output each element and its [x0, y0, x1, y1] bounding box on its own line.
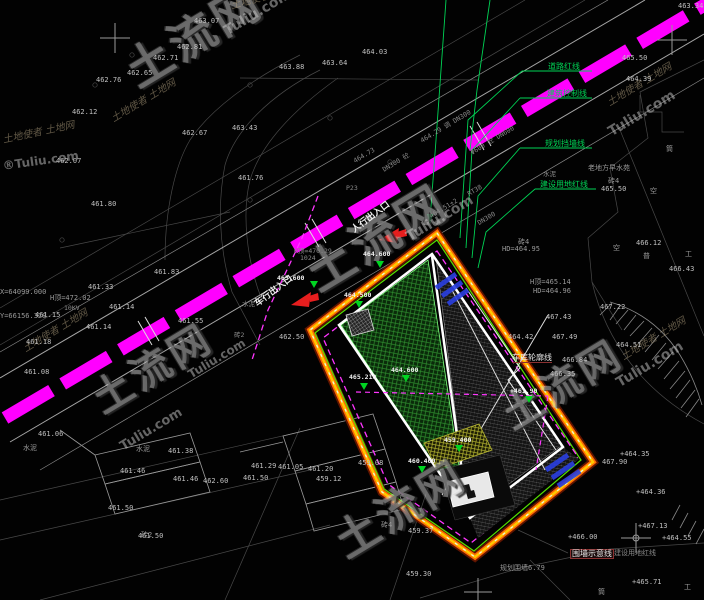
road-annotation-label: 1024	[300, 254, 316, 262]
road-red-line-label: 道路红线	[548, 63, 580, 71]
misc-label: HD=464.95	[502, 245, 540, 253]
misc-label: 砖2	[141, 530, 152, 540]
spot-elevation-label: 459.30	[406, 570, 431, 578]
misc-label: 工	[684, 582, 691, 592]
planning-wall-line-label: 规划挡墙线	[545, 140, 585, 148]
spot-elevation-label: 465.50	[601, 185, 626, 193]
spot-elevation-label: 461.50	[108, 504, 133, 512]
garage-outline-label: 车库轮廓线	[512, 354, 552, 363]
elevation-marker-triangle-icon	[310, 281, 318, 288]
building-control-line-label: 建筑控制线	[547, 90, 587, 98]
elevation-marker-triangle-icon	[360, 383, 368, 390]
spot-elevation-label: 466.84	[562, 356, 587, 364]
road-annotation-label: P23	[346, 184, 358, 192]
spot-elevation-label: 461.33	[88, 283, 113, 291]
spot-elevation-label: 461.55	[178, 317, 203, 325]
spot-elevation-label: 465.50	[622, 54, 647, 62]
spot-elevation-label: 462.60	[203, 477, 228, 485]
construction-land-red-line-label: 建设用地红线	[540, 181, 588, 189]
misc-label: 筒	[666, 144, 673, 154]
spot-elevation-label: 461.20	[308, 465, 333, 473]
spot-elevation-label: 463.88	[279, 63, 304, 71]
spot-elevation-label: 464.51	[616, 341, 641, 349]
elevation-marker-value: 464.500	[344, 291, 371, 299]
misc-label: 水泥	[23, 443, 37, 453]
elevation-marker-value: 459.400	[444, 436, 471, 444]
spot-elevation-label: 464.03	[362, 48, 387, 56]
elevation-marker-triangle-icon	[455, 445, 463, 452]
spot-elevation-label: 464.42	[508, 333, 533, 341]
spot-elevation-label: 461.14	[86, 323, 111, 331]
spot-elevation-label: 459.08	[358, 459, 383, 467]
road-annotation-label: 水泥	[543, 168, 556, 178]
spot-elevation-label: 461.29	[251, 462, 276, 470]
spot-elevation-label: 467.90	[602, 458, 627, 466]
construction-land-red-line-label-2: 建设用地红线	[614, 550, 656, 557]
spot-elevation-label: 467.22	[600, 303, 625, 311]
spot-elevation-label: 463.34	[678, 2, 703, 10]
misc-label: 砖4	[608, 176, 619, 186]
spot-elevation-label: 462.76	[96, 76, 121, 84]
spot-elevation-label: +464.36	[636, 488, 666, 496]
spot-elevation-label: 461.14	[109, 303, 134, 311]
spot-elevation-label: 462.50	[279, 333, 304, 341]
road-annotation-label: 10KV	[64, 304, 80, 312]
spot-elevation-label: 464.39	[626, 75, 651, 83]
elevation-marker-value: 464.600	[391, 366, 418, 374]
spot-elevation-label: 461.76	[238, 174, 263, 182]
road-annotation-label: 砖2	[234, 329, 244, 339]
misc-label: 水泥	[136, 444, 150, 454]
elevation-marker-value: +461.90	[510, 387, 537, 395]
misc-label: 规划围墙6.79	[500, 563, 545, 573]
spot-elevation-label: 462.67	[182, 129, 207, 137]
spot-elevation-label: 466.12	[636, 239, 661, 247]
elevation-marker-value: 465.210	[349, 373, 376, 381]
spot-elevation-label: 461.18	[26, 338, 51, 346]
spot-elevation-label: 461.50	[243, 474, 268, 482]
misc-label: 空	[650, 186, 657, 196]
misc-label: 筒	[598, 587, 605, 597]
misc-label: 普	[643, 251, 650, 261]
spot-elevation-label: 459.12	[316, 475, 341, 483]
spot-elevation-label: 466.35	[550, 370, 575, 378]
spot-elevation-label: 467.43	[546, 313, 571, 321]
spot-elevation-label: 462.71	[153, 54, 178, 62]
spot-elevation-label: 462.07	[56, 157, 81, 165]
spot-elevation-label: 462.12	[72, 108, 97, 116]
site-plan-canvas[interactable]: 土流网Tuliu.com土流网Tuliu.com土流网Tuliu.com土流网土…	[0, 0, 704, 600]
spot-elevation-label: +466.00	[568, 533, 598, 541]
misc-label: 砖4	[381, 520, 392, 530]
spot-elevation-label: 467.49	[552, 333, 577, 341]
elevation-marker-triangle-icon	[355, 301, 363, 308]
spot-elevation-label: +467.13	[638, 522, 668, 530]
misc-label: H顶=472.02	[50, 293, 91, 303]
spot-elevation-label: 466.43	[669, 265, 694, 273]
spot-elevation-label: +464.55	[662, 534, 692, 542]
spot-elevation-label: 461.08	[24, 368, 49, 376]
spot-elevation-label: 461.06	[38, 430, 63, 438]
elevation-marker-value: 460.400	[408, 457, 435, 465]
misc-label: 老地方早水苑	[588, 163, 630, 173]
spot-elevation-label: 463.07	[194, 17, 219, 25]
spot-elevation-label: 463.43	[232, 124, 257, 132]
spot-elevation-label: 461.46	[173, 475, 198, 483]
vehicle-arrow-icon	[291, 292, 311, 307]
spot-elevation-label: 462.65	[127, 69, 152, 77]
leader-lines-green	[427, 0, 596, 268]
misc-label: HD=464.96	[533, 287, 571, 295]
spot-elevation-label: 459.37	[408, 527, 433, 535]
elevation-marker-triangle-icon	[402, 375, 410, 382]
spot-elevation-label: 462.81	[177, 43, 202, 51]
elevation-marker-triangle-icon	[376, 261, 384, 268]
spot-elevation-label: +464.35	[620, 450, 650, 458]
misc-label: Y=66156.328	[0, 312, 46, 320]
spot-elevation-label: 461.46	[120, 467, 145, 475]
spot-elevation-label: 463.64	[322, 59, 347, 67]
spot-elevation-label: 461.38	[168, 447, 193, 455]
misc-label: 空	[613, 243, 620, 253]
elevation-marker-triangle-icon	[525, 396, 533, 403]
misc-label: H顶=465.14	[530, 277, 571, 287]
spot-elevation-label: 461.83	[154, 268, 179, 276]
fence-indication-label: 围墙示意线	[570, 549, 614, 559]
spot-elevation-label: 461.05	[278, 463, 303, 471]
spot-elevation-label: 461.80	[91, 200, 116, 208]
misc-label: X=64099.000	[0, 288, 46, 296]
elevation-marker-value: 464.600	[363, 250, 390, 258]
elevation-marker-triangle-icon	[418, 466, 426, 473]
misc-label: 工	[685, 249, 692, 259]
spot-elevation-label: +465.71	[632, 578, 662, 586]
